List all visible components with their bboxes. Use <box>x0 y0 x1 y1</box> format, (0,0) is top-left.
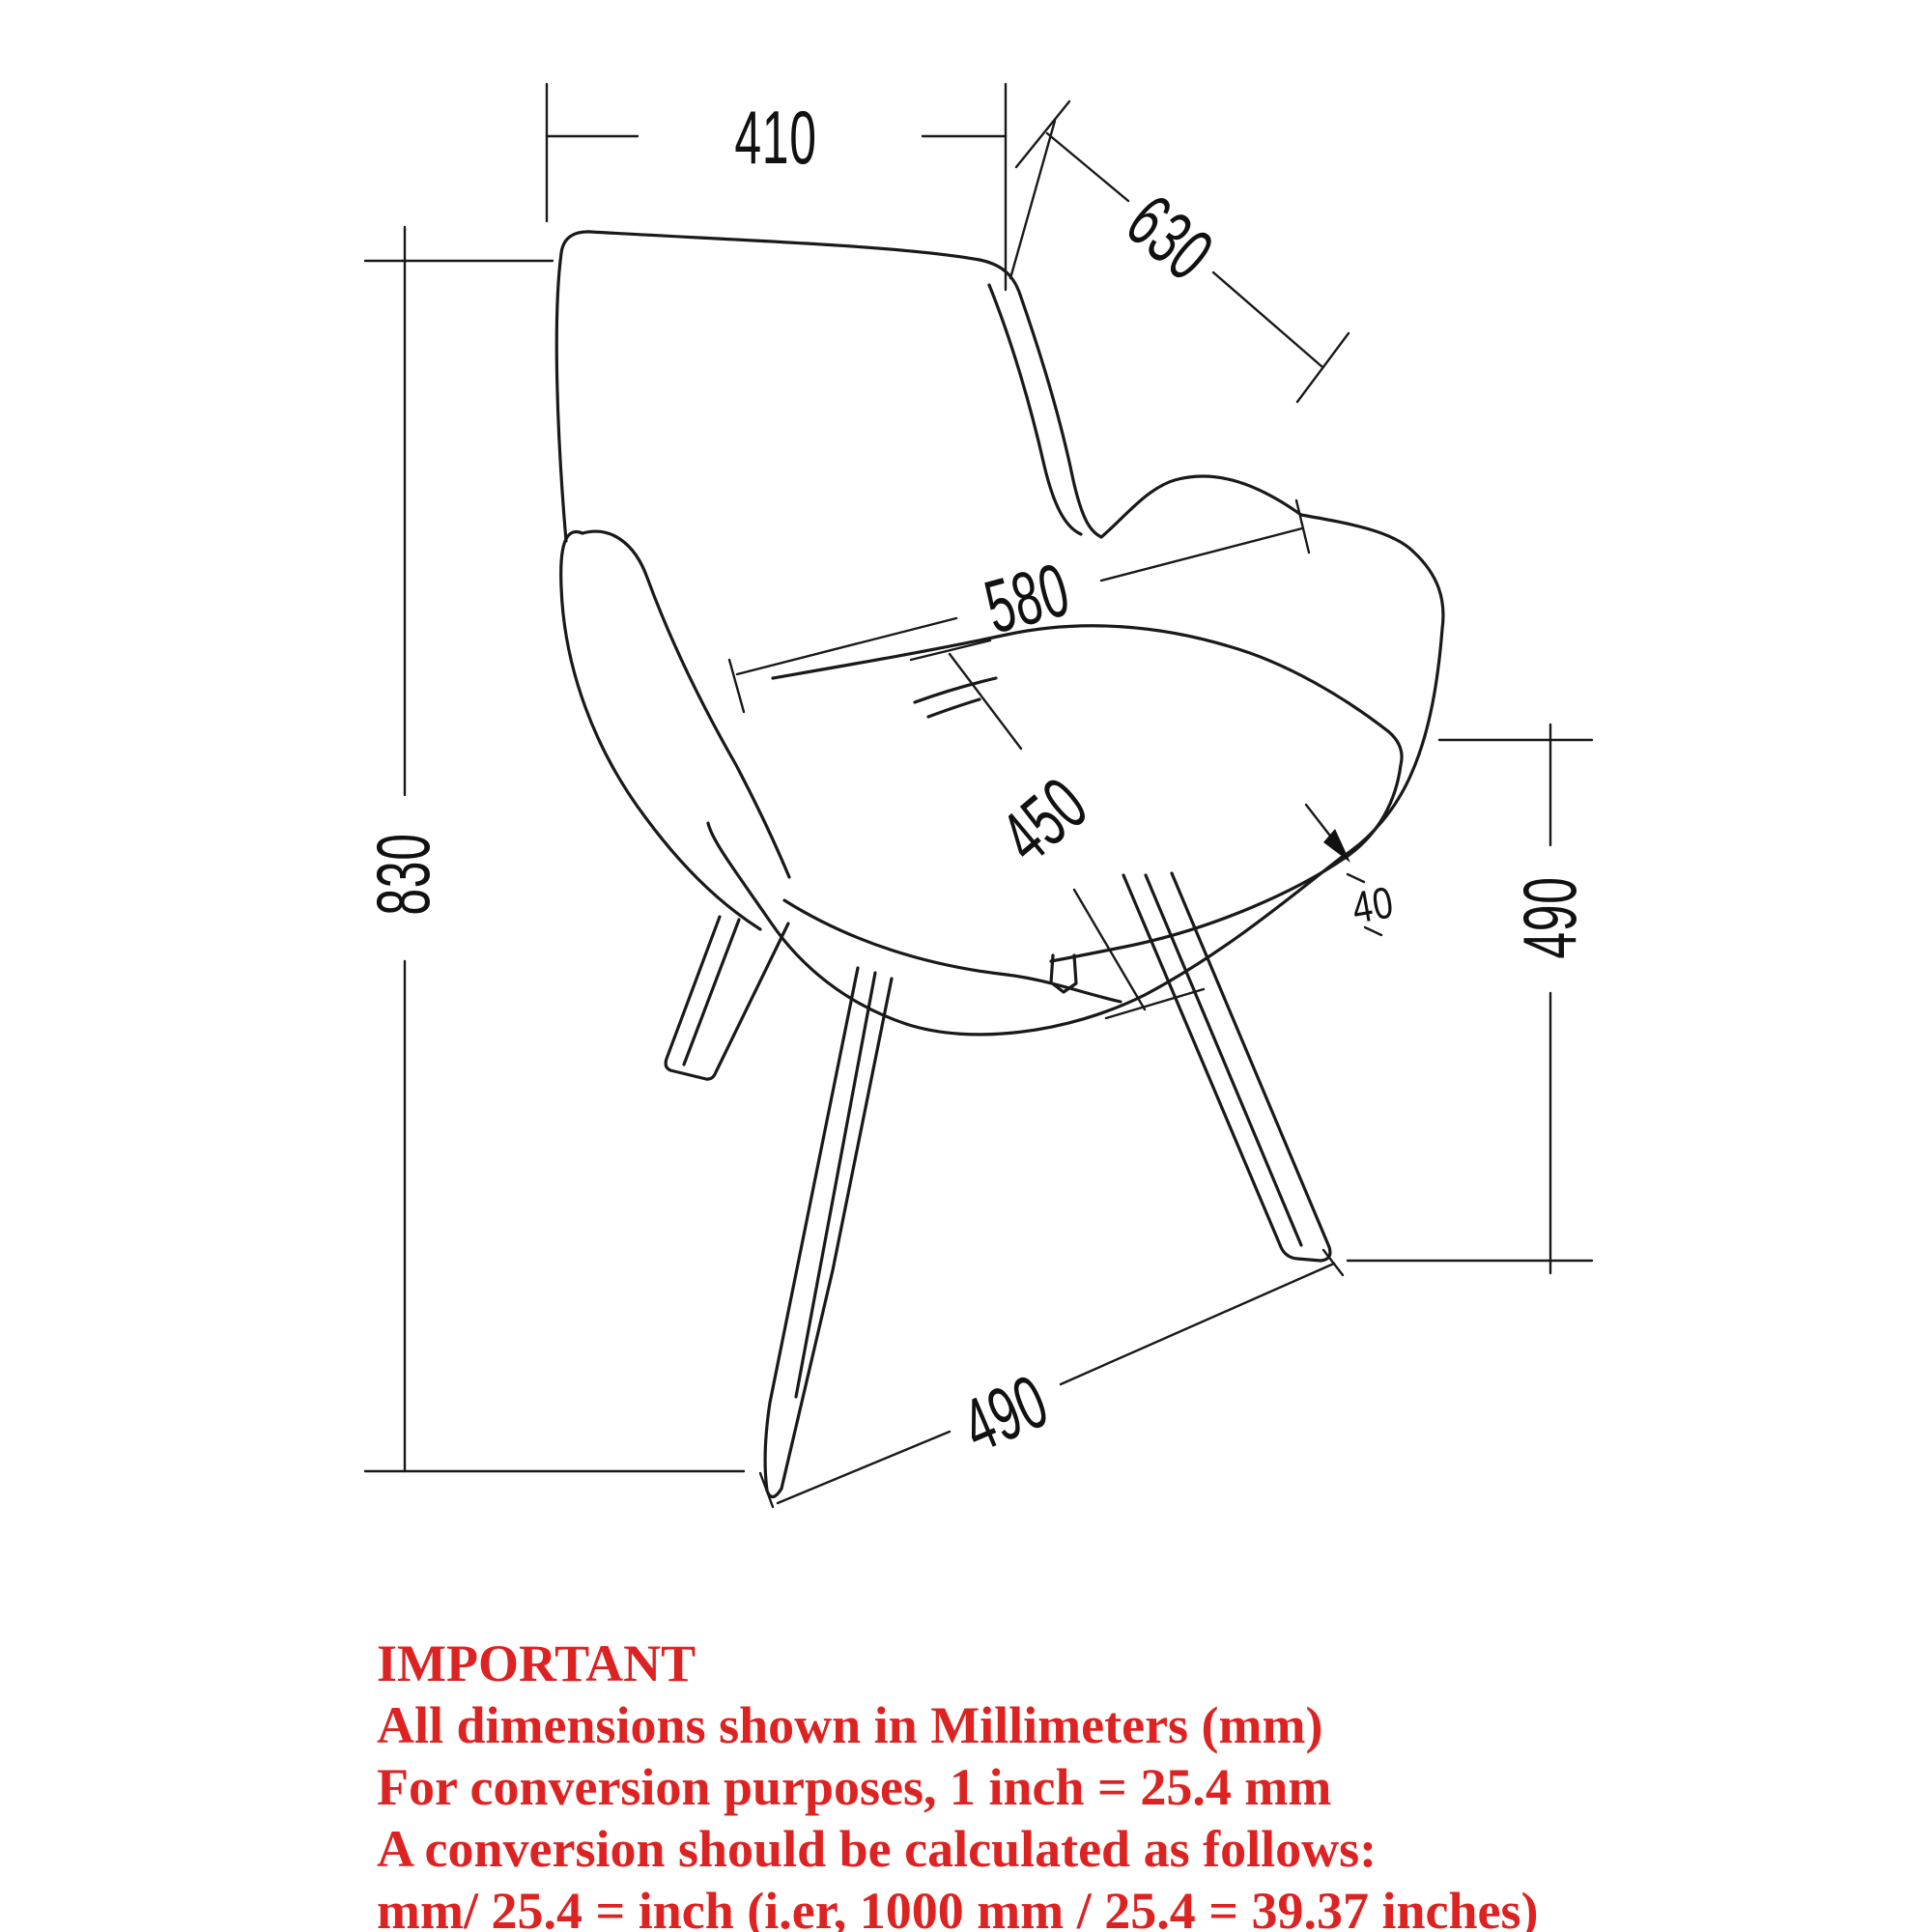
page: 410 630 580 <box>0 0 1932 1932</box>
dim-back-slant-label: 630 <box>1112 179 1229 296</box>
front-left-leg-edge-path <box>796 973 875 1397</box>
front-right-leg-edge-path <box>1146 875 1301 1245</box>
front-left-leg-path <box>765 968 892 1497</box>
dim-back-width-label: 410 <box>734 96 816 180</box>
dim-overall-height-label: 830 <box>361 833 445 915</box>
chair-outline <box>556 232 1443 1497</box>
left-armrest-inner-path <box>582 531 789 877</box>
notice-line-formula: mm/ 25.4 = inch (i.er, 1000 mm / 25.4 = … <box>377 1880 1538 1932</box>
left-armrest-outer-path <box>561 532 760 929</box>
dim-back-slant-height: 630 <box>1010 101 1349 402</box>
dim-shell-thickness: 40 <box>1306 805 1398 935</box>
back-cushion-seam2-path <box>928 699 980 717</box>
dim-seat-width-label: 580 <box>977 547 1078 649</box>
rear-left-leg-path <box>666 917 788 1079</box>
notice-title: IMPORTANT <box>377 1633 1538 1694</box>
notice-line-units: All dimensions shown in Millimeters (mm) <box>377 1694 1538 1756</box>
dim-seat-width: 580 <box>729 500 1309 712</box>
backrest-outer-path <box>556 232 1101 541</box>
dim-overall-height: 830 <box>361 227 744 1471</box>
backrest-inner-edge-path <box>989 285 1081 534</box>
dim-seat-height-label: 490 <box>1508 876 1592 958</box>
dim-seat-height: 490 <box>1348 724 1592 1273</box>
dim-front-leg-span-label: 490 <box>951 1359 1059 1468</box>
dim-back-width: 410 <box>547 84 1006 290</box>
dim-seat-depth-label: 450 <box>985 761 1102 878</box>
important-notice: IMPORTANT All dimensions shown in Millim… <box>377 1633 1538 1932</box>
dimension-lines: 410 630 580 <box>361 84 1592 1507</box>
dim-front-leg-span: 490 <box>760 1250 1343 1507</box>
notice-line-conversion: For conversion purposes, 1 inch = 25.4 m… <box>377 1756 1538 1818</box>
dim-shell-thickness-label: 40 <box>1349 876 1398 932</box>
notice-line-formula-intro: A conversion should be calculated as fol… <box>377 1818 1538 1880</box>
